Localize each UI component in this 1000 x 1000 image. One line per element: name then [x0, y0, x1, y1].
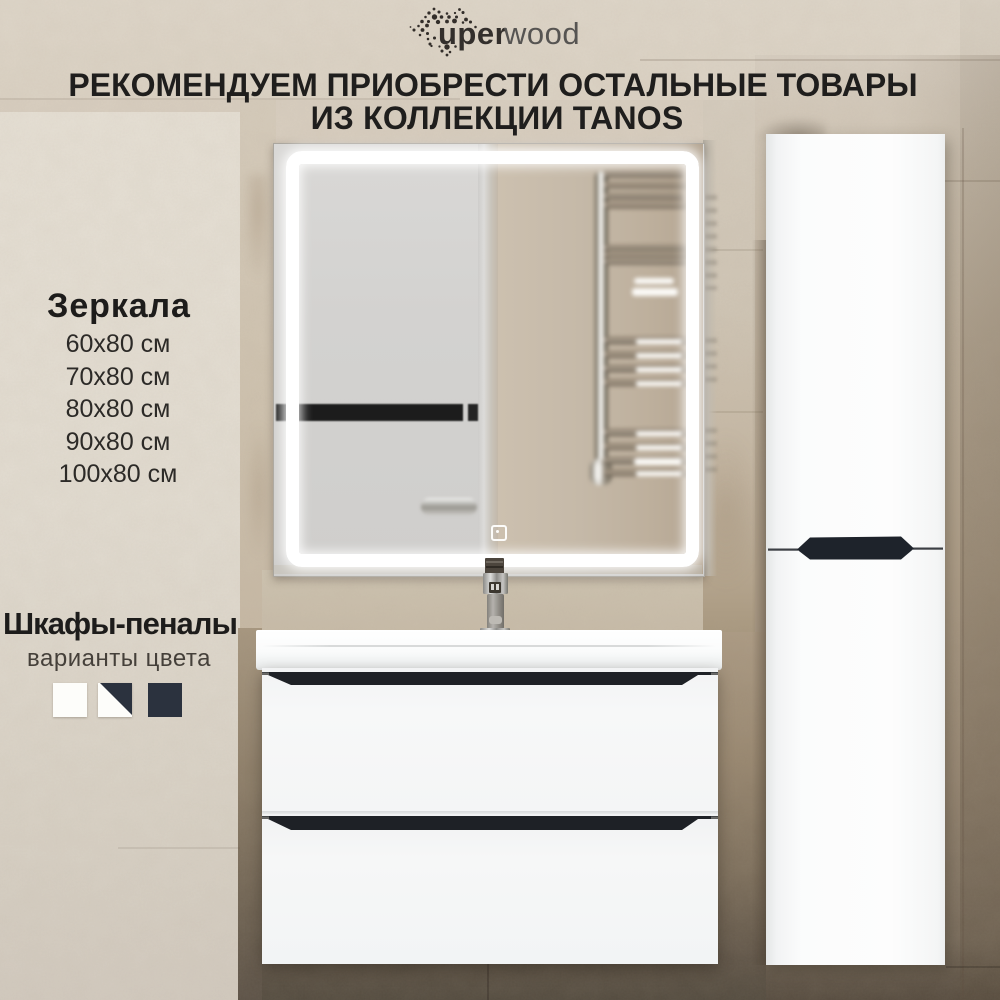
- svg-text:uper: uper: [438, 16, 507, 51]
- svg-text:wood: wood: [503, 16, 580, 51]
